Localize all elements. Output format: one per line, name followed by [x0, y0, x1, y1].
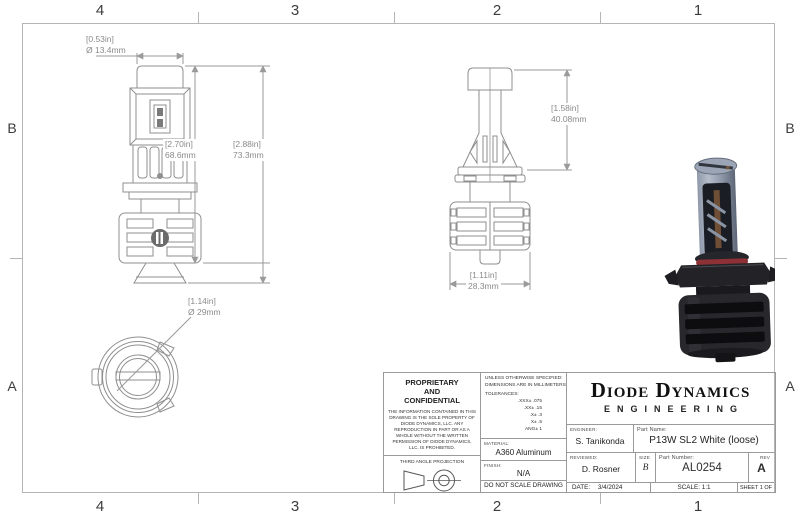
- do-not-scale-text: DO NOT SCALE DRAWING: [481, 481, 566, 490]
- zone-row-right-a: A: [783, 378, 797, 394]
- tolerances-cell: UNLESS OTHERWISE SPECIFIED: DIMENSIONS A…: [481, 373, 567, 439]
- zone-tick: [775, 258, 787, 259]
- bottom-view-drawing: [92, 317, 191, 417]
- part-name-label: Part Name:: [637, 427, 667, 433]
- dim-body-height-label: [2.70in] 68.6mm: [163, 139, 198, 161]
- tolerance-line: .XXX± .075: [485, 399, 566, 406]
- dim-cap-diameter-label: [0.53in] Ø 13.4mm: [84, 34, 128, 56]
- zone-tick: [198, 12, 199, 23]
- rev-cell: REV A: [749, 453, 774, 483]
- size-cell: SIZE B: [636, 453, 656, 483]
- engineer-cell: ENGINEER: S. Tanikonda: [567, 425, 634, 453]
- zone-col-top-2: 2: [487, 2, 507, 19]
- zone-tick: [394, 12, 395, 23]
- proprietary-heading: PROPRIETARY AND CONFIDENTIAL: [384, 378, 480, 405]
- zone-col-top-3: 3: [285, 2, 305, 19]
- rev-label: REV: [760, 455, 770, 460]
- do-not-scale-cell: DO NOT SCALE DRAWING: [481, 481, 567, 492]
- part-number-value: AL0254: [656, 462, 748, 474]
- zone-col-bottom-4: 4: [90, 498, 110, 515]
- finish-cell: FINISH: N/A: [481, 461, 567, 481]
- tolerance-line: ANG± 1: [485, 427, 566, 434]
- zone-tick: [198, 493, 199, 504]
- tolerance-line: .X± .3: [485, 413, 566, 420]
- zone-tick: [600, 493, 601, 504]
- date-cell: DATE: 3/4/2024: [567, 483, 651, 492]
- material-cell: MATERIAL: A360 Aluminum: [481, 439, 567, 461]
- date-label: DATE:: [572, 484, 590, 491]
- projection-cell: THIRD ANGLE PROJECTION: [384, 456, 481, 492]
- units-note: DIMENSIONS ARE IN MILLIMETERS: [481, 383, 566, 390]
- reviewed-label: REVIEWED:: [570, 455, 598, 460]
- sheet-cell: SHEET 1 OF 1: [738, 483, 774, 492]
- reviewed-cell: REVIEWED: D. Rosner: [567, 453, 636, 483]
- dim-heatsink-width-label: [1.11in] 28.3mm: [466, 270, 501, 292]
- engineer-value: S. Tanikonda: [567, 436, 633, 446]
- tolerances-label: TOLERANCES:: [485, 392, 566, 399]
- zone-col-top-1: 1: [688, 2, 708, 19]
- dim-upper-section-label: [1.58in] 40.08mm: [549, 103, 588, 125]
- tolerance-line: X± .5: [485, 420, 566, 427]
- dim-base-diameter-label: [1.14in] Ø 29mm: [186, 296, 223, 318]
- title-block: PROPRIETARY AND CONFIDENTIAL THE INFORMA…: [383, 372, 776, 493]
- rev-value: A: [749, 461, 774, 475]
- part-number-cell: Part Number: AL0254: [656, 453, 749, 483]
- isometric-render: [660, 156, 775, 364]
- side-view-drawing: [450, 68, 530, 264]
- tolerance-line: .XX± .15: [485, 406, 566, 413]
- size-value: B: [636, 463, 655, 473]
- proprietary-cell: PROPRIETARY AND CONFIDENTIAL THE INFORMA…: [384, 373, 481, 456]
- zone-row-left-b: B: [5, 120, 19, 136]
- projection-label: THIRD ANGLE PROJECTION: [384, 460, 480, 465]
- company-logo-cell: Diode Dynamics ENGINEERING: [567, 373, 774, 425]
- proprietary-body: THE INFORMATION CONTAINED IN THIS DRAWIN…: [387, 409, 477, 451]
- engineer-label: ENGINEER:: [570, 427, 597, 432]
- third-angle-projection-icon: [400, 466, 464, 492]
- zone-col-bottom-3: 3: [285, 498, 305, 515]
- engineering-drawing-sheet: 4 3 2 1 4 3 2 1 B A B A: [0, 0, 800, 518]
- dim-overall-height-label: [2.88in] 73.3mm: [231, 139, 266, 161]
- company-division: ENGINEERING: [567, 404, 774, 414]
- zone-tick: [10, 258, 22, 259]
- material-value: A360 Aluminum: [481, 448, 566, 457]
- zone-col-bottom-1: 1: [688, 498, 708, 515]
- zone-col-top-4: 4: [90, 2, 110, 19]
- part-name-value: P13W SL2 White (loose): [634, 435, 774, 446]
- finish-label: FINISH:: [484, 463, 502, 468]
- part-number-label: Part Number:: [659, 455, 694, 461]
- date-value: 3/4/2024: [598, 484, 623, 491]
- company-name: Diode Dynamics: [567, 380, 774, 401]
- finish-value: N/A: [481, 469, 566, 478]
- material-label: MATERIAL:: [484, 441, 510, 446]
- unless-otherwise-note: UNLESS OTHERWISE SPECIFIED:: [481, 373, 566, 383]
- zone-tick: [600, 12, 601, 23]
- scale-cell: SCALE: 1:1: [651, 483, 738, 492]
- zone-tick: [394, 493, 395, 504]
- size-label: SIZE: [639, 455, 650, 460]
- reviewed-value: D. Rosner: [567, 464, 635, 474]
- part-name-cell: Part Name: P13W SL2 White (loose): [634, 425, 774, 453]
- zone-row-right-b: B: [783, 120, 797, 136]
- zone-row-left-a: A: [5, 378, 19, 394]
- front-view-drawing: [119, 66, 201, 283]
- zone-col-bottom-2: 2: [487, 498, 507, 515]
